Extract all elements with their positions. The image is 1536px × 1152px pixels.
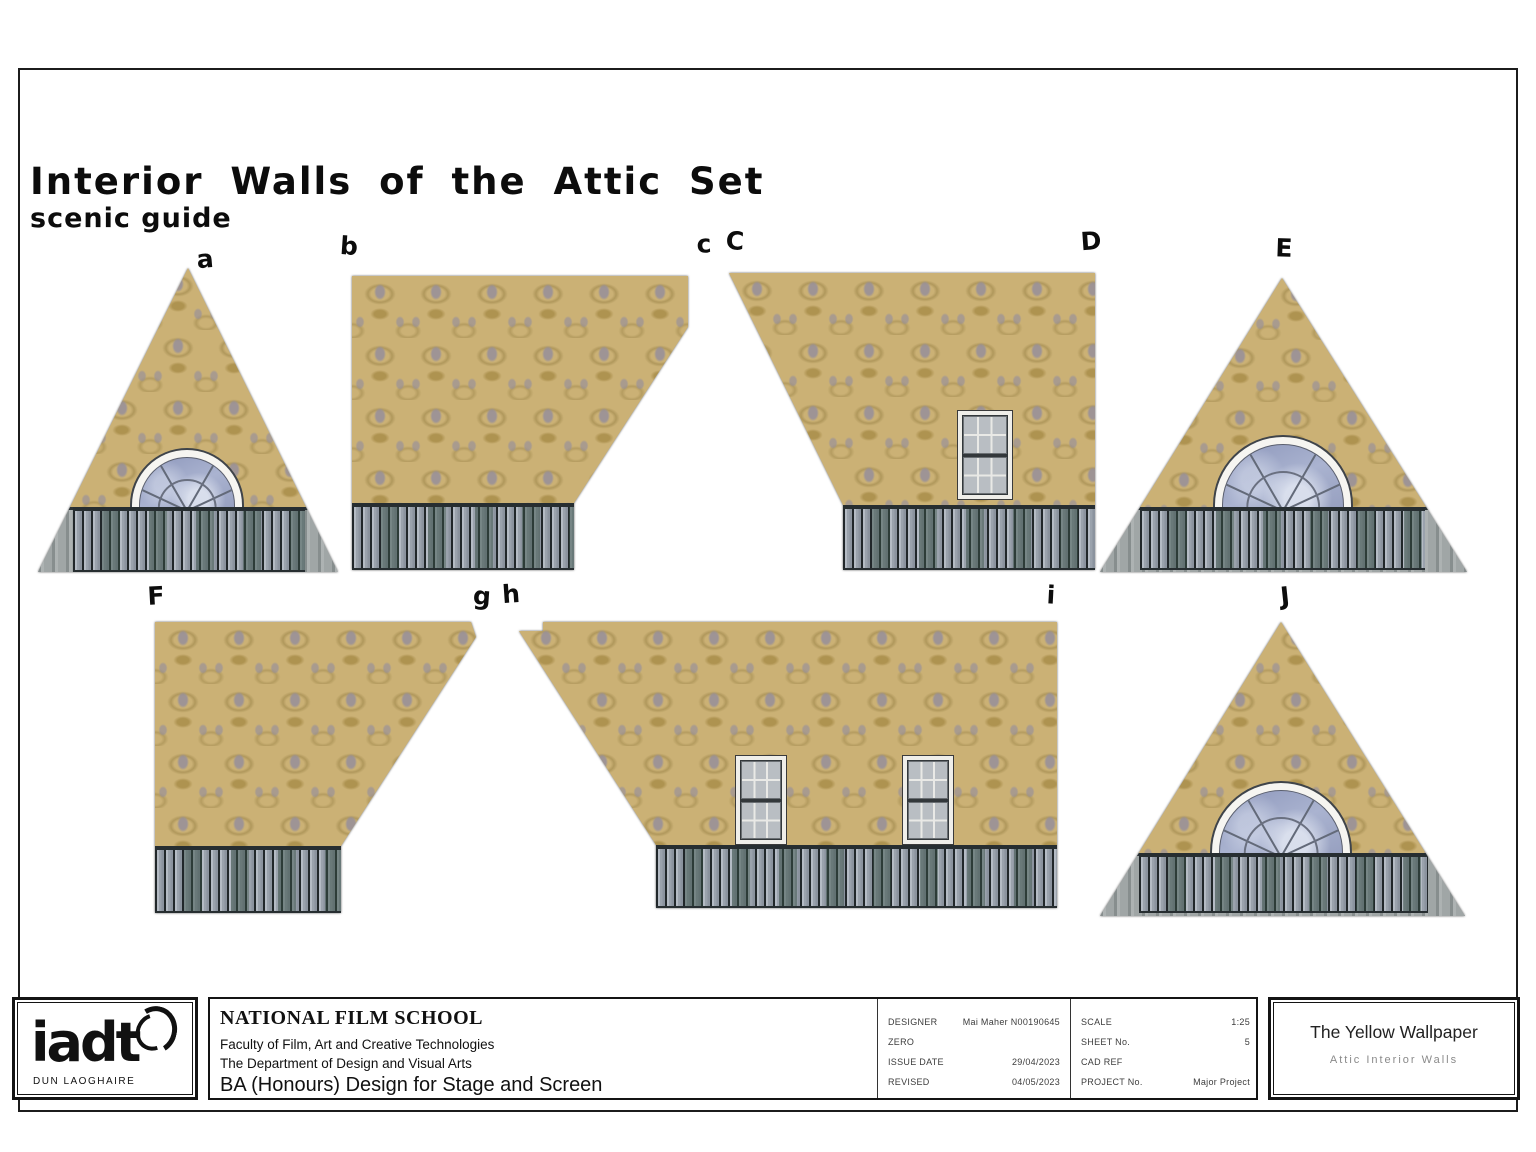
course-name: BA (Honours) Design for Stage and Screen	[220, 1074, 602, 1097]
sash-window	[957, 410, 1013, 500]
sheet-border	[18, 68, 1518, 1112]
wall-label-E: E	[1275, 233, 1293, 263]
revised-value: 04/05/2023	[1012, 1077, 1060, 1087]
arched-window-glass	[139, 457, 235, 507]
project-title-box: The Yellow Wallpaper Attic Interior Wall…	[1268, 997, 1520, 1100]
wainscot-panel	[1140, 507, 1425, 570]
wainscot-panel	[352, 503, 574, 570]
drawing-subtitle: scenic guide	[30, 203, 232, 234]
iadt-logo: iadt	[31, 1016, 138, 1070]
wainscot-panel	[73, 507, 305, 572]
wallpaper-texture	[352, 276, 688, 503]
zero-label: ZERO	[888, 1037, 914, 1047]
designer-row: DESIGNER Mai Maher N00190645	[888, 1017, 1060, 1027]
wall-a-silhouette	[38, 268, 338, 572]
wallpaper-texture	[729, 273, 1095, 505]
arched-window-glass	[1222, 444, 1344, 507]
wall-panel-j	[1100, 622, 1465, 916]
zero-row: ZERO	[888, 1037, 1060, 1047]
iadt-logo-box: iadt DUN LAOGHAIRE	[12, 997, 198, 1100]
wall-b-silhouette	[352, 276, 688, 570]
project-no-label: PROJECT No.	[1081, 1077, 1143, 1087]
cad-ref-row: CAD REF	[1081, 1057, 1250, 1067]
info-column-left: DESIGNER Mai Maher N00190645 ZERO ISSUE …	[877, 999, 1070, 1098]
project-subtitle: Attic Interior Walls	[1271, 1054, 1517, 1066]
wallpaper-texture	[155, 622, 476, 846]
wall-f-silhouette	[155, 622, 476, 913]
wainscot-panel	[843, 505, 1095, 570]
drawing-sheet: Interior Walls of the Attic Set scenic g…	[0, 0, 1536, 1152]
wall-panel-f	[155, 622, 476, 913]
scale-value: 1:25	[1231, 1017, 1250, 1027]
sheet-no-label: SHEET No.	[1081, 1037, 1130, 1047]
wainscot-panel	[656, 845, 1057, 908]
designer-label: DESIGNER	[888, 1017, 937, 1027]
wainscot-panel	[155, 846, 341, 913]
school-info-box: NATIONAL FILM SCHOOL Faculty of Film, Ar…	[208, 997, 1258, 1100]
wall-hi-silhouette	[518, 622, 1057, 908]
wallpaper-texture	[518, 622, 1057, 845]
wall-label-b: b	[339, 231, 359, 261]
drawing-title: Interior Walls of the Attic Set	[30, 160, 764, 203]
designer-value: Mai Maher N00190645	[963, 1017, 1060, 1027]
faculty-name: Faculty of Film, Art and Creative Techno…	[220, 1037, 494, 1052]
scale-label: SCALE	[1081, 1017, 1112, 1027]
wall-panel-e	[1100, 278, 1467, 572]
wall-label-F: F	[147, 581, 166, 611]
cad-ref-label: CAD REF	[1081, 1057, 1123, 1067]
wainscot-panel	[1139, 853, 1428, 913]
wall-e-silhouette	[1100, 278, 1467, 572]
wall-j-silhouette	[1100, 622, 1465, 916]
arched-window-glass	[1219, 790, 1343, 853]
sheet-no-row: SHEET No. 5	[1081, 1037, 1250, 1047]
issue-date-row: ISSUE DATE 29/04/2023	[888, 1057, 1060, 1067]
wall-cd-silhouette	[729, 273, 1095, 570]
wall-label-i: i	[1046, 580, 1056, 609]
wall-label-c: c	[696, 229, 712, 259]
iadt-logo-subtext: DUN LAOGHAIRE	[33, 1076, 135, 1087]
revised-label: REVISED	[888, 1077, 930, 1087]
school-name: NATIONAL FILM SCHOOL	[220, 1007, 483, 1030]
project-no-value: Major Project	[1193, 1077, 1250, 1087]
issue-date-label: ISSUE DATE	[888, 1057, 944, 1067]
project-no-row: PROJECT No. Major Project	[1081, 1077, 1250, 1087]
wall-label-D: D	[1080, 226, 1103, 256]
project-title: The Yellow Wallpaper	[1271, 1022, 1517, 1043]
wall-panel-b	[352, 276, 688, 570]
project-title-inner-border	[1273, 1002, 1515, 1095]
revised-row: REVISED 04/05/2023	[888, 1077, 1060, 1087]
issue-date-value: 29/04/2023	[1012, 1057, 1060, 1067]
info-column-right: SCALE 1:25 SHEET No. 5 CAD REF PROJECT N…	[1070, 999, 1260, 1098]
scale-row: SCALE 1:25	[1081, 1017, 1250, 1027]
sash-window	[902, 755, 954, 845]
wall-panel-cd	[729, 273, 1095, 570]
wall-label-h: h	[501, 579, 521, 609]
sheet-no-value: 5	[1245, 1037, 1250, 1047]
wall-panel-hi	[518, 622, 1057, 908]
department-name: The Department of Design and Visual Arts	[220, 1056, 472, 1071]
wall-panel-a	[38, 268, 338, 572]
wall-label-C: C	[725, 226, 745, 256]
wall-label-g: g	[472, 581, 492, 611]
iadt-crescent-icon	[133, 1006, 177, 1054]
sash-window	[735, 755, 787, 845]
